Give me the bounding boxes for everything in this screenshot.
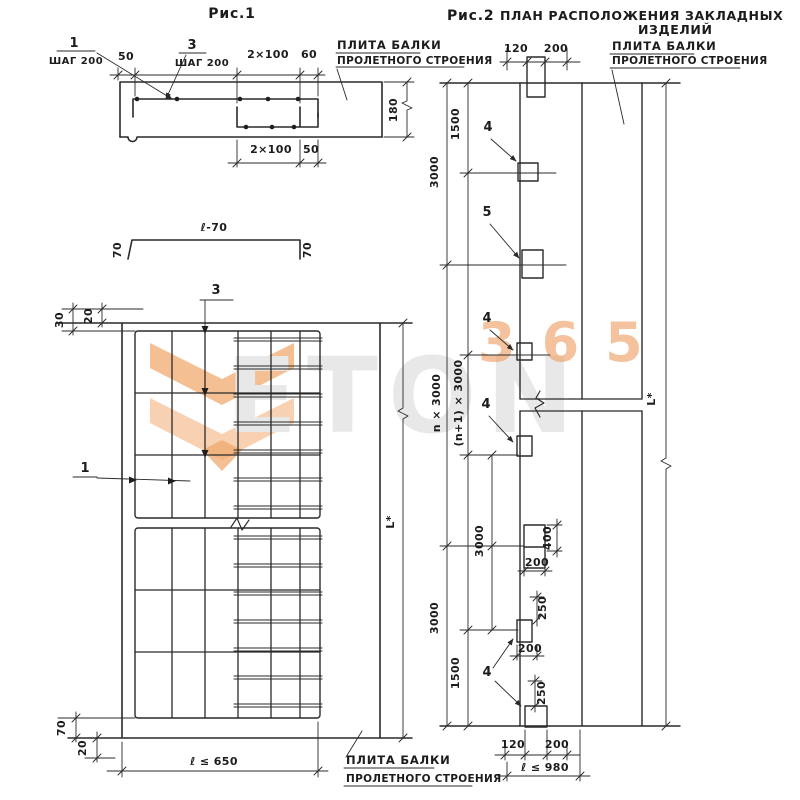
plan-slab-label-line2: ПРОЛЕТНОГО СТРОЕНИЯ bbox=[346, 773, 501, 785]
fig1-dim-2x100-top: 2×100 bbox=[247, 48, 289, 61]
fig1-slab-label-line1: ПЛИТА БАЛКИ bbox=[337, 38, 442, 52]
channel-leg-right: 70 bbox=[301, 242, 314, 258]
fig2-dim-n-3000: n × 3000 bbox=[430, 374, 443, 433]
plan-dim-30-top: 30 bbox=[53, 312, 66, 328]
fig2-dim-3000-mid: 3000 bbox=[428, 602, 441, 634]
fig2-dim-n1-3000: (n+1) × 3000 bbox=[452, 359, 465, 446]
fig2-dim-3000-low: 3000 bbox=[473, 525, 486, 557]
fig2-dim-120-bottom: 120 bbox=[501, 738, 525, 751]
plan-dim-70-bottom: 70 bbox=[55, 720, 68, 736]
fig2-dim-overall: L* bbox=[645, 392, 658, 406]
fig2-dim-200-top: 200 bbox=[544, 42, 568, 55]
fig2-dim-200-a: 200 bbox=[525, 556, 549, 569]
plan-dim-20-top: 20 bbox=[82, 308, 95, 324]
fig2-dim-200-b: 200 bbox=[518, 642, 542, 655]
fig2-dim-250-b: 250 bbox=[535, 681, 548, 705]
plan-dim-length: L* bbox=[384, 515, 397, 529]
fig2-mark4-fourth: 4 bbox=[481, 397, 490, 412]
fig2-dim-length-limit: ℓ ≤ 980 bbox=[520, 761, 569, 774]
fig2-dim-250-a: 250 bbox=[536, 596, 549, 620]
fig1-mark3-note: ШАГ 200 bbox=[175, 58, 229, 69]
fig1-dim-2x100-bottom: 2×100 bbox=[250, 143, 292, 156]
fig1-dim-180: 180 bbox=[387, 98, 400, 122]
fig2-slab-label-line2: ПРОЛЕТНОГО СТРОЕНИЯ bbox=[612, 55, 767, 67]
fig1-dim-50-bottom: 50 bbox=[303, 143, 319, 156]
fig2-mark4-third: 4 bbox=[482, 311, 491, 326]
plan-mark3: 3 bbox=[211, 283, 220, 298]
fig2-mark4-bottom: 4 bbox=[482, 665, 491, 680]
fig1-dim-50-top: 50 bbox=[118, 50, 134, 63]
fig2-embedded-items-plan: Рис.2 ПЛАН РАСПОЛОЖЕНИЯ ЗАКЛАДНЫХ ИЗДЕЛИ… bbox=[428, 8, 783, 781]
fig1-title: Рис.1 bbox=[208, 6, 255, 22]
fig2-mark5: 5 bbox=[482, 205, 491, 220]
fig2-slab-label-line1: ПЛИТА БАЛКИ bbox=[612, 39, 717, 53]
fig2-dim-200-bottom: 200 bbox=[545, 738, 569, 751]
fig2-dim-3000-top: 3000 bbox=[428, 156, 441, 188]
plan-slab-label-line1: ПЛИТА БАЛКИ bbox=[346, 753, 451, 767]
channel-profile: ℓ-70 70 70 bbox=[111, 221, 314, 259]
plan-dim-width-limit: ℓ ≤ 650 bbox=[189, 755, 238, 768]
drawing-canvas: Рис.1 1 ШАГ 200 3 ШАГ 200 50 2×100 60 ПЛ… bbox=[0, 0, 800, 800]
channel-leg-left: 70 bbox=[111, 242, 124, 258]
fig1-dim-60: 60 bbox=[301, 48, 317, 61]
fig2-mark4-top: 4 bbox=[483, 120, 492, 135]
fig1-mark1-number: 1 bbox=[69, 36, 78, 51]
fig1-mark1-note: ШАГ 200 bbox=[49, 56, 103, 67]
drawing-sheet: ETON 365 bbox=[0, 0, 800, 800]
fig1-mark3-number: 3 bbox=[187, 38, 196, 53]
fig2-title-line1: ПЛАН РАСПОЛОЖЕНИЯ ЗАКЛАДНЫХ bbox=[500, 8, 783, 23]
channel-length-label: ℓ-70 bbox=[200, 221, 228, 234]
fig2-dim-120-top: 120 bbox=[504, 42, 528, 55]
fig2-dim-1500-bottom: 1500 bbox=[449, 657, 462, 689]
fig2-title-line2: ИЗДЕЛИЙ bbox=[638, 22, 713, 37]
dimension-ticks bbox=[69, 58, 670, 780]
plan-mark1: 1 bbox=[80, 461, 89, 476]
fig2-title-fig: Рис.2 bbox=[447, 8, 494, 24]
fig2-dim-1500-top: 1500 bbox=[449, 108, 462, 140]
fig1-cross-section: Рис.1 1 ШАГ 200 3 ШАГ 200 50 2×100 60 ПЛ… bbox=[49, 6, 493, 167]
plan-dim-20-bottom: 20 bbox=[76, 740, 89, 756]
plan-reinforcement: 3 1 20 30 70 20 ℓ ≤ 650 L* ПЛИТА БАЛКИ П… bbox=[53, 283, 501, 786]
fig2-dim-400: 400 bbox=[541, 526, 554, 550]
fig1-slab-label-line2: ПРОЛЕТНОГО СТРОЕНИЯ bbox=[337, 55, 492, 67]
